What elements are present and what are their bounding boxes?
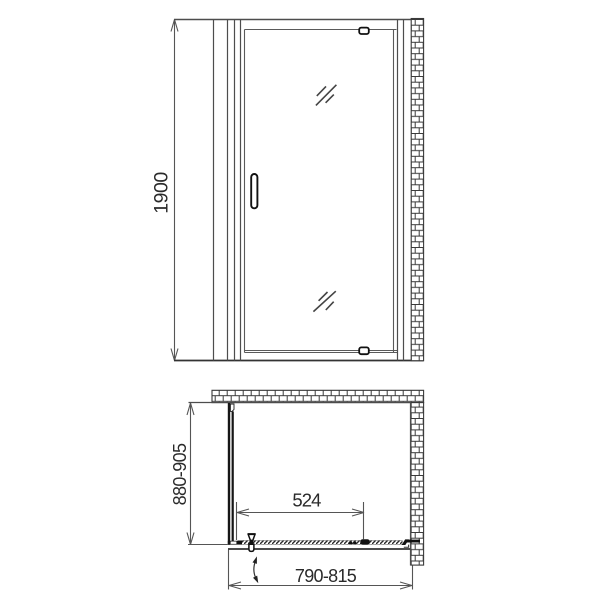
svg-text:880-905: 880-905 [170,443,190,505]
svg-text:790-815: 790-815 [295,566,357,586]
svg-text:1900: 1900 [151,172,173,214]
svg-text:524: 524 [292,490,321,511]
